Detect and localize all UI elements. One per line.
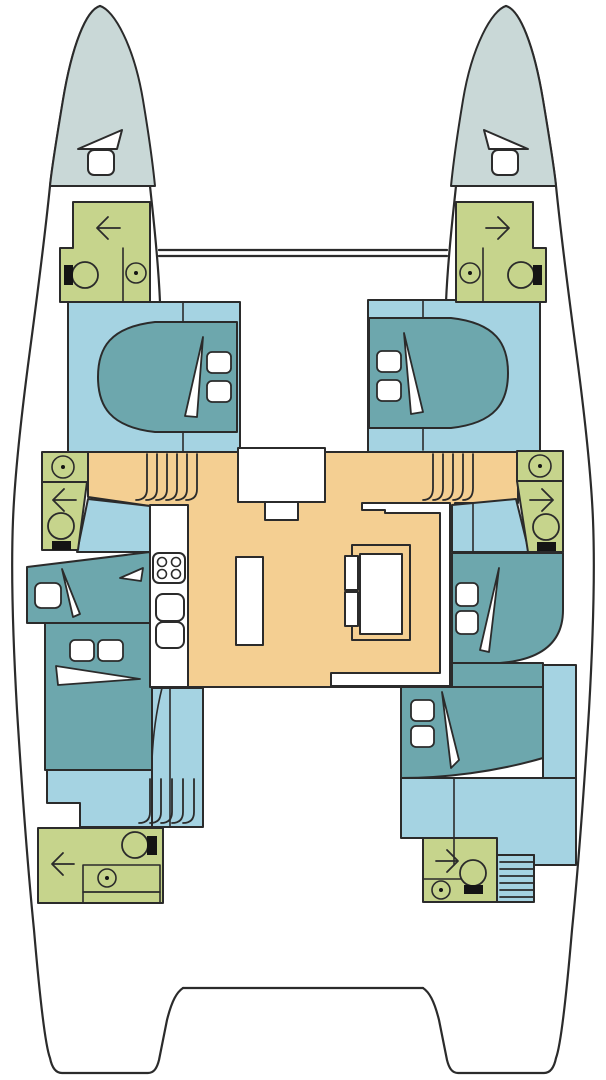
starboard-hall-floor bbox=[543, 665, 576, 778]
port-hall-floor bbox=[152, 688, 203, 827]
forward-door bbox=[238, 448, 325, 502]
basin-drain-dot bbox=[468, 271, 472, 275]
starboard-forward-head bbox=[456, 202, 546, 302]
starboard-mid-bed-base bbox=[452, 663, 543, 687]
pillow bbox=[377, 380, 401, 401]
port-bow-hatch bbox=[88, 150, 114, 175]
pillow bbox=[207, 381, 231, 402]
starboard-forward-bed bbox=[369, 318, 508, 428]
dinette-table-group bbox=[345, 554, 402, 634]
port-forward-head bbox=[60, 202, 150, 302]
stove bbox=[153, 553, 185, 583]
port-mid-head bbox=[42, 482, 87, 550]
dinette-table bbox=[360, 554, 402, 634]
galley-sink bbox=[156, 594, 184, 621]
island-counter bbox=[236, 557, 263, 645]
deck-plan bbox=[0, 0, 606, 1080]
pillow bbox=[207, 352, 231, 373]
port-aft-cabin-floor bbox=[47, 770, 152, 827]
starboard-mid-entry-floor bbox=[452, 499, 529, 552]
toilet-tank bbox=[147, 836, 157, 855]
port-mid-entry-floor bbox=[77, 499, 150, 552]
galley-sink bbox=[156, 622, 184, 648]
toilet-tank bbox=[64, 265, 73, 285]
dinette-seat bbox=[345, 592, 358, 626]
pillow bbox=[98, 640, 123, 661]
port-forward-bed bbox=[98, 322, 237, 432]
basin-drain-dot bbox=[439, 888, 443, 892]
pillow bbox=[456, 583, 478, 606]
starboard-bow-hatch bbox=[492, 150, 518, 175]
plan-root bbox=[12, 6, 594, 1073]
forward-crossbeam bbox=[159, 250, 447, 256]
pillow bbox=[35, 583, 61, 608]
toilet-tank bbox=[464, 885, 483, 894]
toilet-tank bbox=[52, 541, 71, 550]
pillow bbox=[456, 611, 478, 634]
dinette-seat bbox=[345, 556, 358, 590]
deck-plan-page bbox=[0, 0, 606, 1080]
pillow bbox=[377, 351, 401, 372]
basin-drain-dot bbox=[61, 465, 65, 469]
bow-peaks bbox=[50, 6, 556, 186]
starboard-mid-bed bbox=[452, 553, 563, 663]
toilet-tank bbox=[537, 542, 556, 551]
toilet-tank bbox=[533, 265, 542, 285]
basin-drain-dot bbox=[538, 464, 542, 468]
basin-drain-dot bbox=[105, 876, 109, 880]
pillow bbox=[411, 726, 434, 747]
basin-drain-dot bbox=[134, 271, 138, 275]
pillow bbox=[70, 640, 94, 661]
pillow bbox=[411, 700, 434, 721]
forward-door-step bbox=[265, 502, 298, 520]
